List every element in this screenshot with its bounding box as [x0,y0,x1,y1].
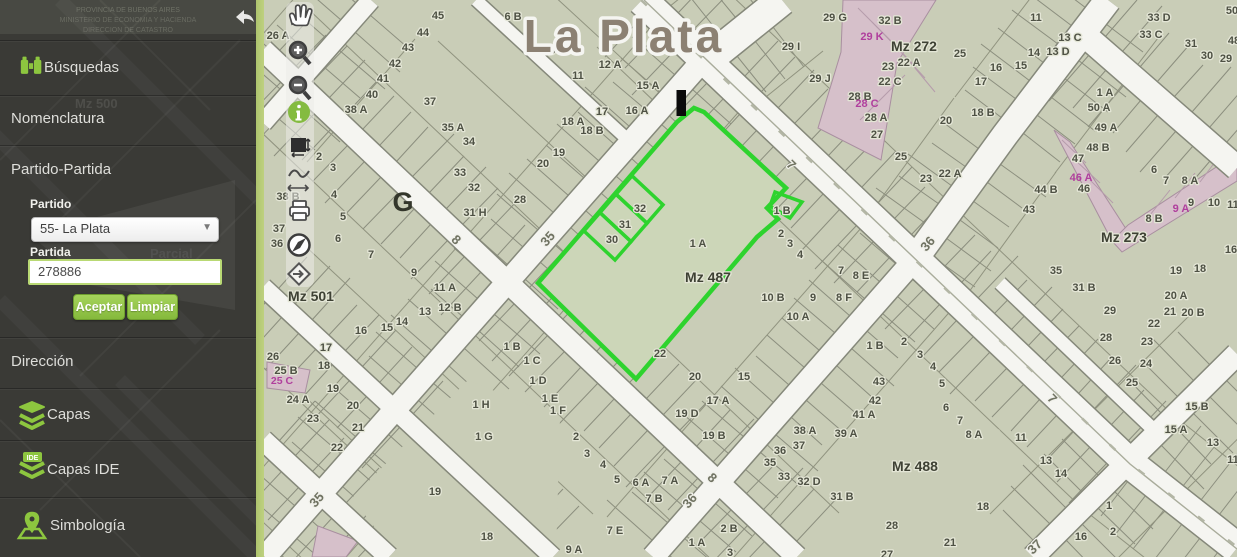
svg-text:2: 2 [573,431,579,443]
svg-text:35 A: 35 A [442,122,465,134]
svg-text:29: 29 [1104,305,1116,317]
svg-text:31: 31 [1185,38,1197,50]
svg-text:Mz 487: Mz 487 [685,269,731,285]
svg-text:28 A: 28 A [865,112,888,124]
svg-text:36: 36 [774,445,786,457]
svg-text:4: 4 [331,189,338,201]
svg-text:6 A: 6 A [633,477,650,489]
svg-text:20: 20 [940,115,952,127]
svg-text:20: 20 [537,158,549,170]
svg-text:18: 18 [1194,263,1206,275]
svg-text:15 A: 15 A [637,80,660,92]
svg-text:49 A: 49 A [1095,122,1118,134]
svg-text:44: 44 [417,27,430,39]
svg-text:11 A: 11 A [434,282,456,294]
svg-text:28: 28 [1100,332,1112,344]
svg-text:3: 3 [330,162,336,174]
svg-text:2: 2 [901,336,907,348]
svg-text:6 B: 6 B [504,11,521,23]
svg-text:33: 33 [778,471,790,483]
svg-text:1 E: 1 E [542,393,559,405]
svg-text:47: 47 [1072,153,1084,165]
svg-text:1 B: 1 B [773,205,790,217]
svg-text:46 A: 46 A [1070,172,1093,184]
svg-text:29 I: 29 I [782,41,800,53]
svg-text:27: 27 [881,549,893,557]
svg-text:18 B: 18 B [971,107,994,119]
svg-text:32: 32 [634,203,646,215]
svg-text:33 D: 33 D [1147,12,1170,24]
svg-text:48 B: 48 B [1086,142,1109,154]
svg-text:50: 50 [1226,5,1237,17]
svg-text:31: 31 [619,219,631,231]
svg-text:3: 3 [917,349,923,361]
svg-text:29 J: 29 J [809,73,830,85]
svg-text:11: 11 [1015,432,1027,444]
svg-text:18: 18 [318,360,330,372]
svg-text:19: 19 [327,383,339,395]
svg-text:14: 14 [1055,468,1068,480]
svg-text:9 A: 9 A [1173,203,1190,215]
svg-text:20 A: 20 A [1165,290,1188,302]
svg-text:22: 22 [331,442,343,454]
svg-text:Mz 273: Mz 273 [1101,229,1147,245]
svg-text:13: 13 [1040,455,1052,467]
svg-text:11: 11 [572,70,584,82]
svg-text:18 B: 18 B [580,125,603,137]
svg-text:16 A: 16 A [626,105,649,117]
svg-text:1 A: 1 A [690,238,707,250]
svg-text:IDE: IDE [27,455,39,462]
svg-text:1 A: 1 A [1097,87,1114,99]
svg-text:8 E: 8 E [853,270,870,282]
svg-text:25: 25 [1126,377,1138,389]
svg-text:15 B: 15 B [1185,401,1208,413]
svg-text:11: 11 [1227,454,1237,466]
svg-text:21: 21 [1164,306,1176,318]
svg-text:48: 48 [1228,35,1237,47]
svg-text:1 C: 1 C [523,355,540,367]
svg-text:7 A: 7 A [662,475,679,487]
svg-text:Mz 501: Mz 501 [288,288,334,304]
svg-text:10 A: 10 A [787,311,810,323]
svg-text:16: 16 [1225,244,1237,256]
svg-text:25 C: 25 C [271,375,294,387]
svg-text:30: 30 [1201,50,1213,62]
svg-text:1 F: 1 F [550,405,566,417]
svg-text:1 A: 1 A [689,537,706,549]
svg-text:1 B: 1 B [866,340,883,352]
svg-text:31 B: 31 B [1072,282,1095,294]
svg-text:2: 2 [316,151,322,163]
svg-text:22: 22 [1148,318,1160,330]
svg-text:35: 35 [1050,265,1062,277]
svg-text:17: 17 [975,76,987,88]
svg-text:20: 20 [689,371,701,383]
svg-text:28 C: 28 C [855,98,878,110]
svg-text:37: 37 [424,96,436,108]
svg-text:36: 36 [271,238,283,250]
svg-text:15 A: 15 A [1165,424,1188,436]
svg-text:19 D: 19 D [675,408,698,420]
svg-text:18: 18 [481,531,493,543]
svg-text:18: 18 [977,501,989,513]
svg-text:16: 16 [355,325,367,337]
svg-text:38 A: 38 A [794,425,817,437]
svg-text:9: 9 [810,292,816,304]
svg-text:2: 2 [778,228,784,240]
svg-text:24: 24 [1140,358,1153,370]
svg-text:3: 3 [787,238,793,250]
svg-text:14: 14 [1028,47,1041,59]
svg-text:19: 19 [553,147,565,159]
svg-text:1 G: 1 G [475,431,493,443]
svg-text:16: 16 [1075,531,1087,543]
svg-text:20 B: 20 B [1181,307,1204,319]
svg-text:9: 9 [411,267,417,279]
svg-text:G: G [392,187,413,217]
svg-text:22: 22 [654,348,666,360]
svg-text:43: 43 [873,376,885,388]
svg-text:38 A: 38 A [345,104,368,116]
svg-text:15: 15 [381,322,393,334]
svg-text:4: 4 [930,361,937,373]
svg-text:23: 23 [882,61,894,73]
svg-text:16: 16 [990,62,1002,74]
svg-text:17: 17 [596,106,608,118]
svg-text:29: 29 [1220,53,1232,65]
svg-text:7 E: 7 E [607,525,624,537]
svg-text:31 B: 31 B [830,491,853,503]
svg-text:1 H: 1 H [472,399,489,411]
svg-text:46: 46 [1078,183,1090,195]
svg-text:La Plata: La Plata [524,10,724,62]
svg-text:35: 35 [764,457,776,469]
svg-text:31 H: 31 H [463,207,486,219]
svg-text:8 A: 8 A [1182,175,1199,187]
svg-text:12 B: 12 B [438,302,461,314]
svg-text:32 B: 32 B [878,15,901,27]
svg-text:1 D: 1 D [529,375,546,387]
svg-text:15: 15 [1015,60,1027,72]
svg-text:37: 37 [793,440,805,452]
svg-text:26: 26 [1109,355,1121,367]
svg-text:13 D: 13 D [1046,46,1069,58]
svg-text:Mz 488: Mz 488 [892,458,938,474]
svg-text:29 K: 29 K [860,31,883,43]
svg-text:44 B: 44 B [1034,184,1057,196]
svg-text:7: 7 [368,249,374,261]
svg-text:32: 32 [468,182,480,194]
svg-text:32 D: 32 D [797,476,820,488]
svg-text:5: 5 [614,474,620,486]
svg-text:19: 19 [1170,265,1182,277]
svg-text:43: 43 [1023,204,1035,216]
svg-text:33: 33 [454,167,466,179]
svg-text:24 A: 24 A [287,394,310,406]
svg-text:25: 25 [895,151,907,163]
svg-text:15: 15 [738,371,750,383]
svg-text:13 C: 13 C [1058,32,1081,44]
svg-text:4: 4 [600,459,607,471]
svg-text:34: 34 [463,136,476,148]
svg-text:33 C: 33 C [1139,29,1162,41]
svg-text:39 A: 39 A [835,428,858,440]
svg-text:Mz 272: Mz 272 [891,38,937,54]
svg-text:8 A: 8 A [966,429,983,441]
svg-text:9 A: 9 A [566,544,583,556]
svg-text:37: 37 [273,223,285,235]
svg-text:5: 5 [340,211,346,223]
svg-text:10: 10 [1208,197,1220,209]
svg-text:5: 5 [939,378,945,390]
svg-text:25: 25 [954,48,966,60]
svg-text:2: 2 [1110,526,1116,538]
svg-text:28: 28 [886,520,898,532]
svg-text:8 B: 8 B [1145,213,1162,225]
svg-text:20: 20 [347,400,359,412]
svg-text:17 A: 17 A [707,395,730,407]
svg-text:29 G: 29 G [823,12,847,24]
svg-text:50 A: 50 A [1088,102,1111,114]
svg-text:21: 21 [352,422,364,434]
svg-text:11: 11 [1227,199,1237,211]
svg-text:23: 23 [1141,336,1153,348]
svg-text:6: 6 [943,402,949,414]
svg-text:23: 23 [920,173,932,185]
svg-text:41 A: 41 A [853,409,876,421]
svg-text:22 A: 22 A [939,168,962,180]
svg-text:7 B: 7 B [645,493,662,505]
svg-text:3: 3 [584,448,590,460]
svg-text:2 B: 2 B [720,523,737,535]
svg-text:23: 23 [307,413,319,425]
svg-text:19: 19 [429,486,441,498]
svg-text:14: 14 [396,316,409,328]
svg-text:1: 1 [1106,500,1112,512]
svg-text:7: 7 [1163,175,1169,187]
svg-text:4: 4 [797,249,804,261]
svg-text:1 B: 1 B [503,341,520,353]
svg-text:43: 43 [402,42,414,54]
svg-text:22 A: 22 A [898,57,921,69]
svg-text:7: 7 [957,415,963,427]
svg-text:13: 13 [419,306,431,318]
svg-text:6: 6 [335,233,341,245]
svg-text:3: 3 [727,547,733,557]
svg-text:30: 30 [606,234,618,246]
svg-text:40: 40 [366,89,378,101]
svg-text:13: 13 [1207,437,1219,449]
svg-text:10 B: 10 B [761,292,784,304]
svg-text:21: 21 [944,537,956,549]
svg-text:28: 28 [514,194,526,206]
svg-text:7: 7 [838,265,844,277]
svg-text:42: 42 [869,395,881,407]
svg-text:22 C: 22 C [878,76,901,88]
svg-text:8 F: 8 F [836,292,852,304]
svg-text:27: 27 [871,129,883,141]
svg-text:17: 17 [320,342,332,354]
svg-text:6: 6 [1151,164,1157,176]
svg-text:41: 41 [377,73,389,85]
svg-text:26: 26 [267,351,279,363]
svg-text:11: 11 [1030,12,1042,24]
svg-text:45: 45 [432,10,444,22]
svg-text:19 B: 19 B [702,430,725,442]
svg-text:42: 42 [389,58,401,70]
